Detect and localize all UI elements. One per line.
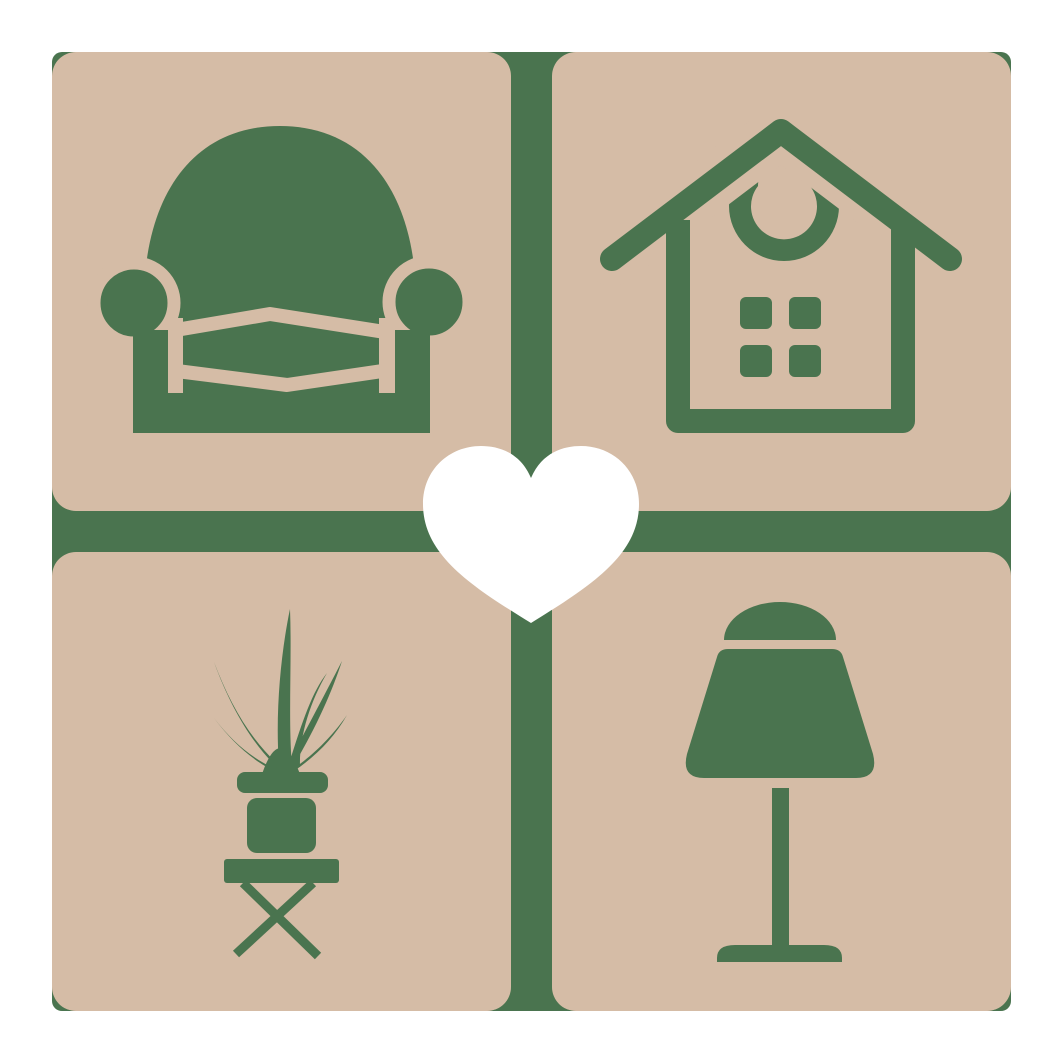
lamp-stem: [772, 788, 789, 948]
lamp-shade: [686, 649, 874, 778]
window-pane-top-right: [789, 297, 821, 329]
lamp-base: [717, 945, 842, 962]
logo-canvas: [0, 0, 1063, 1063]
logo: [0, 0, 1063, 1063]
armchair-base: [133, 393, 430, 433]
pot-rim: [237, 772, 328, 793]
window-pane-bottom-right: [789, 345, 821, 377]
pot-body: [247, 798, 316, 853]
window-pane-bottom-left: [740, 345, 772, 377]
stool-top: [224, 859, 339, 883]
window-pane-top-left: [740, 297, 772, 329]
